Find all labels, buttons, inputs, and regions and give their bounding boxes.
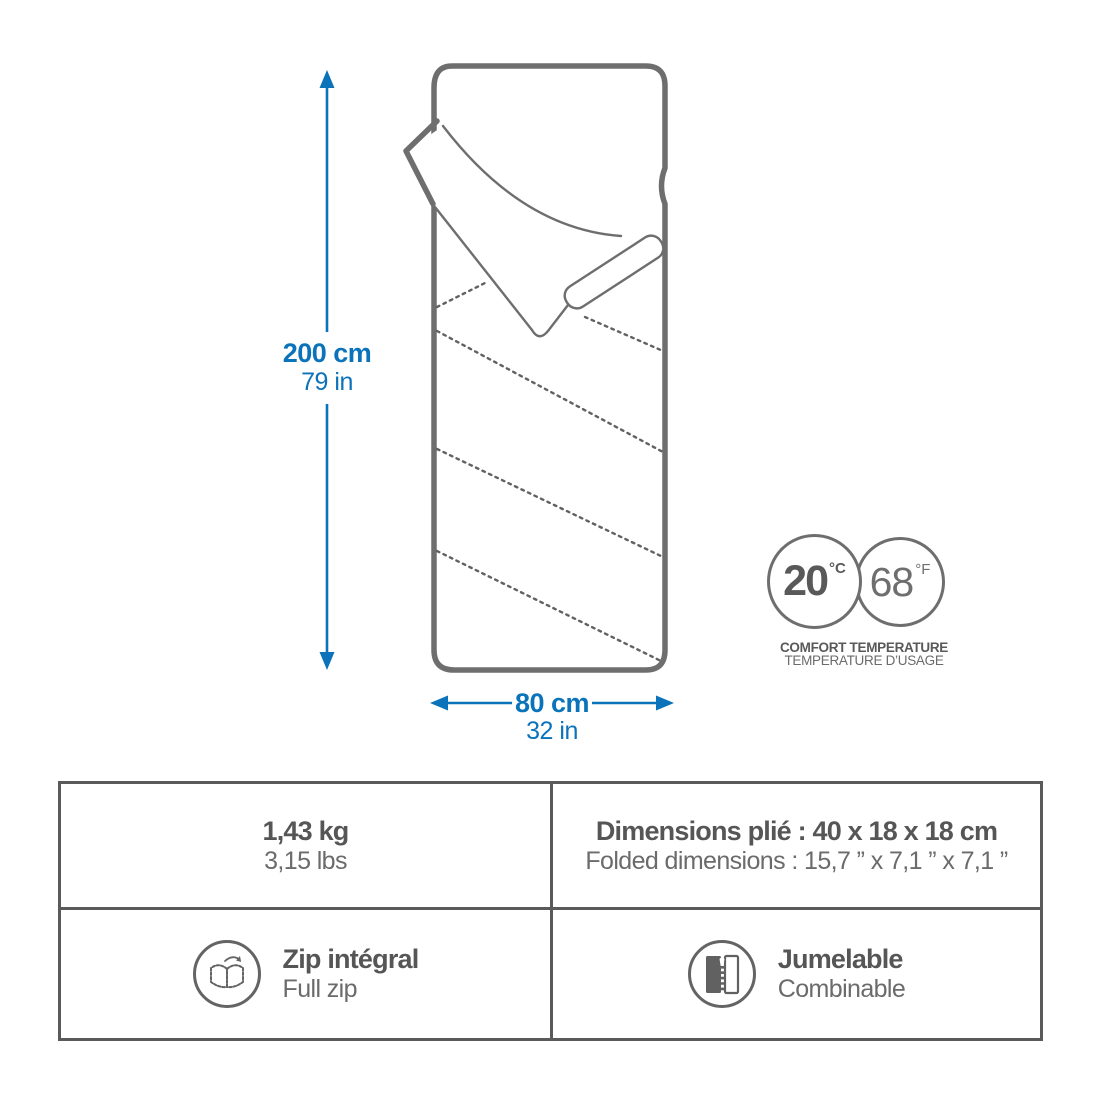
spec-cell-weight: 1,43 kg 3,15 lbs bbox=[61, 784, 553, 910]
weight-imperial: 3,15 lbs bbox=[264, 847, 347, 876]
full-zip-icon-circle bbox=[193, 940, 261, 1008]
celsius-unit: °C bbox=[829, 560, 846, 577]
celsius-badge: 20°C bbox=[767, 534, 862, 629]
fahrenheit-value: 68 bbox=[870, 559, 914, 606]
length-imperial-label: 79 in bbox=[301, 368, 353, 396]
folded-dimensions-fr: Dimensions plié : 40 x 18 x 18 cm bbox=[596, 816, 997, 847]
comfort-temperature-block: 68°F 20°C COMFORT TEMPERATURE TEMPERATUR… bbox=[758, 528, 970, 670]
spec-cell-full-zip: Zip intégral Full zip bbox=[61, 910, 553, 1038]
celsius-value: 20 bbox=[783, 557, 827, 606]
spec-cell-combinable: Jumelable Combinable bbox=[553, 910, 1040, 1038]
spec-table: 1,43 kg 3,15 lbs Dimensions plié : 40 x … bbox=[58, 781, 1043, 1041]
full-zip-en: Full zip bbox=[283, 975, 357, 1004]
zipper-combine-icon bbox=[698, 950, 746, 998]
width-metric-label: 80 cm bbox=[515, 688, 589, 718]
full-zip-fr: Zip intégral bbox=[283, 944, 419, 975]
open-bag-full-zip-icon bbox=[203, 950, 251, 998]
fahrenheit-unit: °F bbox=[915, 561, 930, 578]
combinable-icon-circle bbox=[688, 940, 756, 1008]
temperature-caption-fr: TEMPERATURE D’USAGE bbox=[758, 654, 970, 667]
weight-metric: 1,43 kg bbox=[263, 816, 349, 847]
width-imperial-label: 32 in bbox=[526, 717, 578, 745]
spec-cell-folded-dimensions: Dimensions plié : 40 x 18 x 18 cm Folded… bbox=[553, 784, 1040, 910]
combinable-fr: Jumelable bbox=[778, 944, 903, 975]
product-spec-infographic: 200 cm 79 in 80 cm 32 in 68°F 20°C COMFO… bbox=[0, 0, 1100, 1100]
temperature-caption: COMFORT TEMPERATURE TEMPERATURE D’USAGE bbox=[758, 641, 970, 667]
folded-dimensions-en: Folded dimensions : 15,7 ” x 7,1 ” x 7,1… bbox=[585, 847, 1007, 876]
length-metric-label: 200 cm bbox=[283, 338, 372, 368]
combinable-en: Combinable bbox=[778, 975, 905, 1004]
fahrenheit-badge: 68°F bbox=[855, 537, 945, 627]
